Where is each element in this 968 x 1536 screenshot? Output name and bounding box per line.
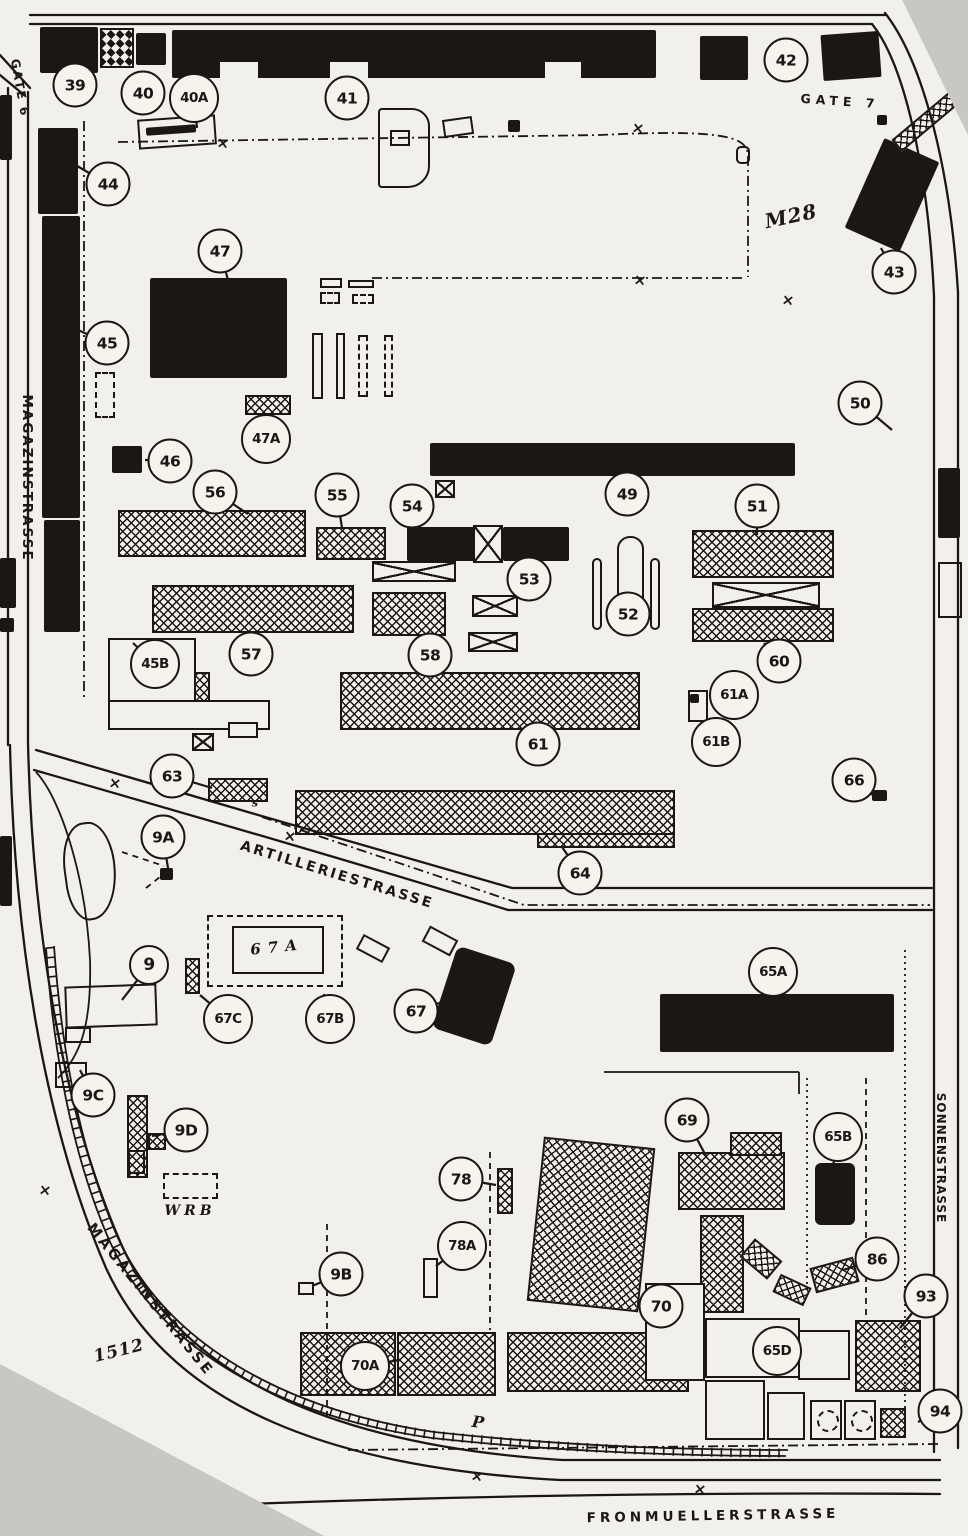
building-marker-51: 51 [735, 484, 780, 529]
building-marker-9B: 9B [319, 1252, 364, 1297]
building-marker-9: 9 [129, 945, 169, 985]
building-marker-70A: 70A [340, 1341, 390, 1391]
building-marker-67C: 67C [203, 994, 253, 1044]
fence-x-mark: × [693, 1479, 708, 1499]
building-marker-9D: 9D [164, 1108, 209, 1153]
building-marker-70: 70 [639, 1284, 684, 1329]
fence-x-mark: × [781, 290, 796, 310]
building-marker-40A: 40A [169, 73, 219, 123]
building-marker-9C: 9C [71, 1073, 116, 1118]
fence-x-mark: × [108, 773, 123, 793]
building-marker-86: 86 [855, 1237, 900, 1282]
building-marker-47: 47 [198, 229, 243, 274]
structure [72, 98, 940, 1422]
fence-x-mark: × [216, 133, 231, 153]
annotation-s: s [252, 797, 258, 810]
building-marker-61B: 61B [691, 717, 741, 767]
building-marker-65D: 65D [752, 1326, 802, 1376]
building-marker-56: 56 [193, 470, 238, 515]
building-marker-65A: 65A [748, 947, 798, 997]
building-marker-61: 61 [516, 722, 561, 767]
building-marker-65B: 65B [813, 1112, 863, 1162]
building-marker-40: 40 [121, 71, 166, 116]
building-marker-64: 64 [558, 851, 603, 896]
building-marker-43: 43 [872, 250, 917, 295]
building-marker-78: 78 [439, 1157, 484, 1202]
building-marker-52: 52 [606, 592, 651, 637]
building-marker-94: 94 [918, 1389, 963, 1434]
building-marker-67: 67 [394, 989, 439, 1034]
building-marker-39: 39 [53, 63, 98, 108]
building-marker-9A: 9A [141, 815, 186, 860]
fence-x-mark: × [470, 1466, 485, 1486]
building-marker-45: 45 [85, 321, 130, 366]
building-marker-42: 42 [764, 38, 809, 83]
building-marker-61A: 61A [709, 670, 759, 720]
annotation-wrb: WRB [164, 1203, 215, 1219]
road-line [604, 1072, 799, 1094]
street-label-sonnenstrasse: SONNENSTRASSE [934, 1093, 948, 1223]
building-marker-57: 57 [229, 632, 274, 677]
map-paper: 394040A414243444545B464747A4950515253545… [0, 0, 968, 1536]
building-marker-41: 41 [325, 76, 370, 121]
building-marker-44: 44 [86, 162, 131, 207]
fence-x-mark: × [631, 118, 646, 138]
building-marker-50: 50 [838, 381, 883, 426]
building-marker-49: 49 [605, 472, 650, 517]
building-marker-47A: 47A [241, 414, 291, 464]
fence-x-mark: × [633, 270, 648, 290]
building-marker-45B: 45B [130, 639, 180, 689]
building-marker-46: 46 [148, 439, 193, 484]
building-marker-67B: 67B [305, 994, 355, 1044]
building-marker-69: 69 [665, 1098, 710, 1143]
building-marker-93: 93 [904, 1274, 949, 1319]
road-line [146, 869, 170, 888]
building-marker-53: 53 [507, 557, 552, 602]
building-marker-78A: 78A [437, 1221, 487, 1271]
street-label-magazinstrasse: MAGAZINSTRASSE [19, 394, 35, 561]
building-marker-54: 54 [390, 484, 435, 529]
building-marker-60: 60 [757, 639, 802, 684]
fence-x-mark: × [283, 826, 298, 846]
fence-x-mark: × [38, 1180, 53, 1200]
building-marker-55: 55 [315, 473, 360, 518]
building-marker-58: 58 [408, 633, 453, 678]
scanned-site-map: 394040A414243444545B464747A4950515253545… [0, 0, 968, 1536]
building-marker-66: 66 [832, 758, 877, 803]
building-marker-63: 63 [150, 754, 195, 799]
